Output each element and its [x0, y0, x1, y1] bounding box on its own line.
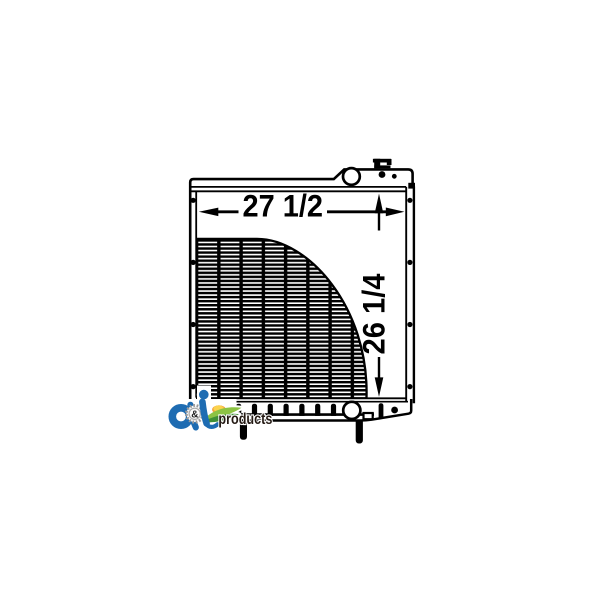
svg-text:27 1/2: 27 1/2	[243, 188, 324, 224]
svg-text:26 1/4: 26 1/4	[356, 273, 392, 354]
svg-text:products: products	[218, 411, 272, 428]
svg-text:&: &	[191, 410, 198, 421]
